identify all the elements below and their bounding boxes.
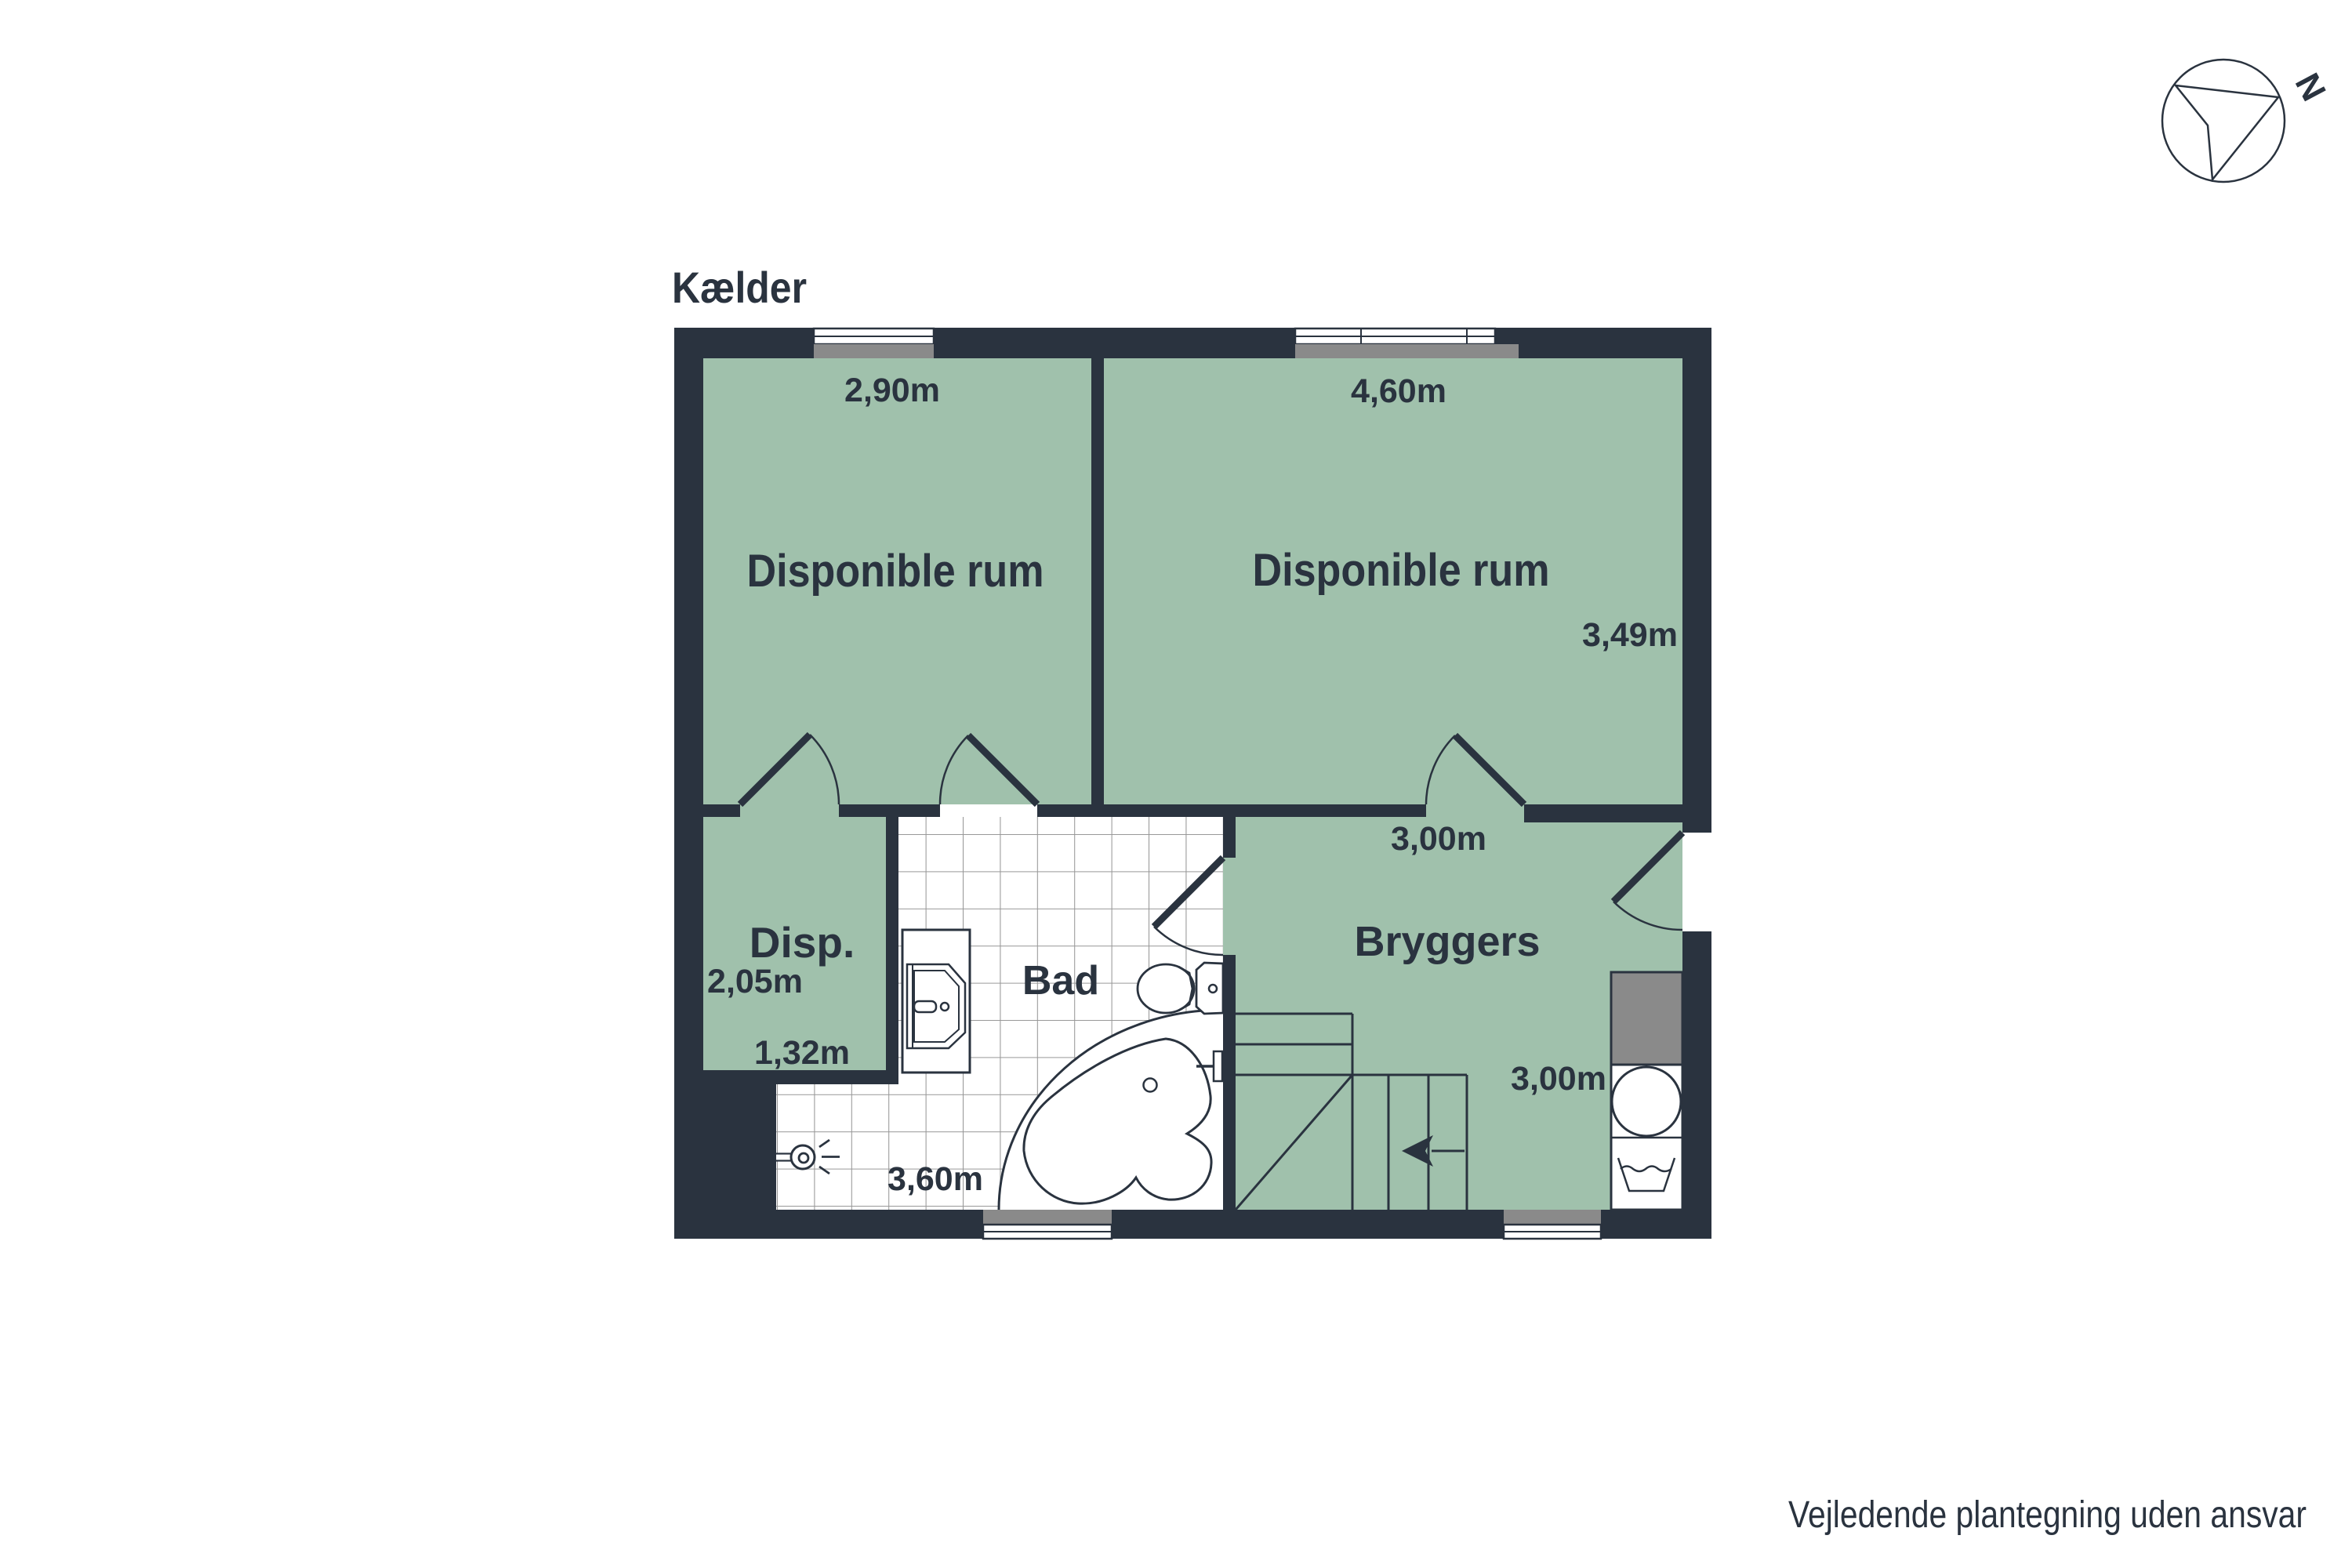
svg-text:3,49m: 3,49m (1582, 616, 1678, 654)
svg-text:2,05m: 2,05m (707, 963, 803, 1000)
svg-text:Disp.: Disp. (750, 918, 855, 967)
svg-text:Disponible rum: Disponible rum (747, 546, 1044, 597)
svg-text:3,00m: 3,00m (1391, 820, 1486, 858)
svg-text:3,60m: 3,60m (887, 1160, 983, 1198)
svg-text:Vejledende plantegning uden an: Vejledende plantegning uden ansvar (1788, 1494, 2307, 1536)
svg-text:4,60m: 4,60m (1351, 372, 1446, 410)
svg-text:2,90m: 2,90m (844, 372, 940, 409)
svg-text:Bad: Bad (1022, 958, 1099, 1004)
svg-text:3,00m: 3,00m (1511, 1060, 1606, 1098)
svg-text:Disponible rum: Disponible rum (1253, 545, 1550, 596)
svg-text:Kælder: Kælder (672, 263, 807, 312)
svg-text:1,32m: 1,32m (754, 1034, 850, 1072)
svg-text:Bryggers: Bryggers (1354, 918, 1540, 965)
